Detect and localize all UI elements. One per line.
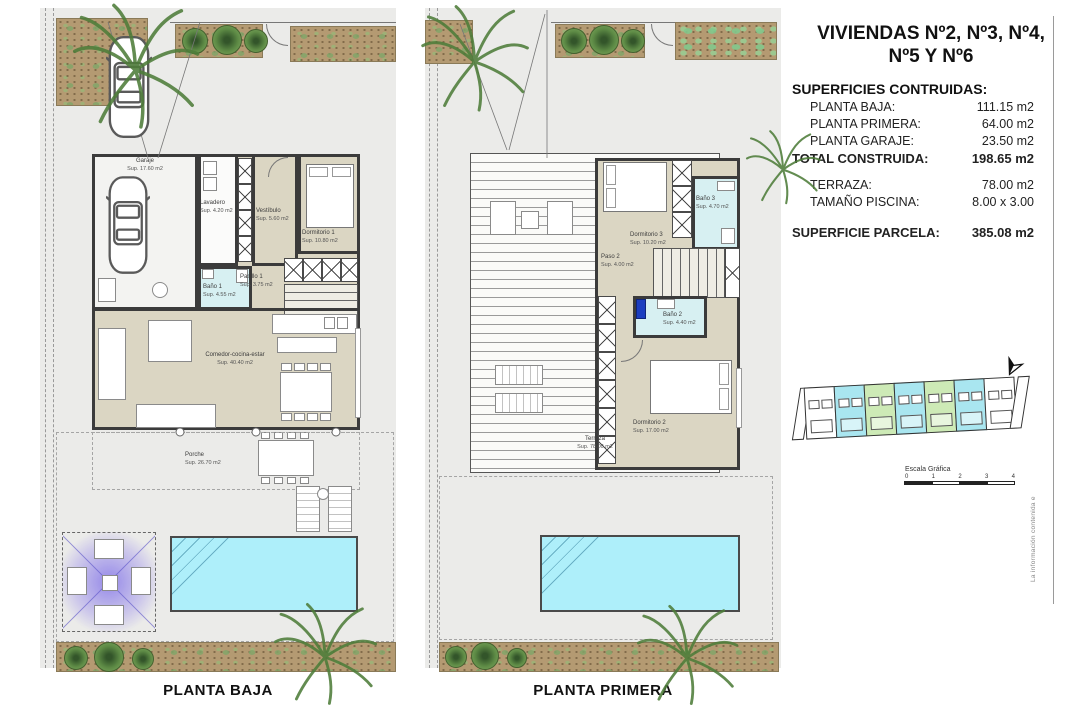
sheet-title-line1: VIVIENDAS Nº2, Nº3, Nº4, xyxy=(792,22,1070,45)
surfaces-heading: SUPERFICIES CONTRUIDAS: xyxy=(792,81,1070,97)
palm-tree-icon xyxy=(68,0,203,135)
room-label-dormitorio2: Dormitorio 2Sup. 17.00 m2 xyxy=(633,420,669,434)
scale-tick: 3 xyxy=(985,474,988,480)
title-block: VIVIENDAS Nº2, Nº3, Nº4, Nº5 Y Nº6 SUPER… xyxy=(792,22,1070,240)
room-label-terraza: TerrazaSup. 78.00 m2 xyxy=(545,436,645,450)
room-label-porche: PorcheSup. 26.70 m2 xyxy=(185,452,221,466)
site-unit-2 xyxy=(834,384,868,438)
room-label-dormitorio1: Dormitorio 1Sup. 10.80 m2 xyxy=(302,230,338,244)
plan-planta-baja: GarajeSup. 17.60 m2 LavaderoSup. 4.20 m2… xyxy=(40,8,396,668)
side-disclaimer-text: La información contenida e xyxy=(1030,452,1037,582)
scale-label: Escala Gráfica xyxy=(905,466,1015,473)
surface-label: PLANTA PRIMERA: xyxy=(810,117,921,131)
surface-row: PLANTA PRIMERA: 64.00 m2 xyxy=(792,117,1034,131)
surface-row: PLANTA GARAJE: 23.50 m2 xyxy=(792,134,1034,148)
scale-tick: 0 xyxy=(905,474,908,480)
sheet-title-line2: Nº5 Y Nº6 xyxy=(792,45,1070,68)
scale-tick: 2 xyxy=(958,474,961,480)
total-value: 198.65 m2 xyxy=(972,151,1034,166)
room-label-bano3: Baño 3Sup. 4.70 m2 xyxy=(696,196,729,210)
sheet-title: VIVIENDAS Nº2, Nº3, Nº4, Nº5 Y Nº6 xyxy=(792,22,1070,68)
surface-value: 111.15 m2 xyxy=(977,100,1034,114)
room-label-dormitorio3: Dormitorio 3Sup. 10.20 m2 xyxy=(630,232,666,246)
drawing-sheet: GarajeSup. 17.60 m2 LavaderoSup. 4.20 m2… xyxy=(0,0,1080,720)
room-label-pasillo1: Pasillo 1Sup. 3.75 m2 xyxy=(240,274,273,288)
palm-tree-icon xyxy=(270,600,380,710)
sheet-divider-line xyxy=(1053,16,1054,604)
total-row: TOTAL CONSTRUIDA: 198.65 m2 xyxy=(792,151,1034,166)
scale-segments xyxy=(905,481,1015,485)
surface-value: 64.00 m2 xyxy=(982,117,1034,131)
palm-tree-icon xyxy=(633,602,741,710)
scale-tick: 1 xyxy=(932,474,935,480)
surface-row: TERRAZA: 78.00 m2 xyxy=(792,178,1034,192)
surface-row: TAMAÑO PISCINA: 8.00 x 3.00 xyxy=(792,195,1034,209)
room-label-comedor: Comedor-cocina-estarSup. 40.40 m2 xyxy=(175,352,295,366)
palm-tree-icon xyxy=(417,2,532,117)
parcel-label: SUPERFICIE PARCELA: xyxy=(792,225,940,240)
plan-planta-primera: Dormitorio 3Sup. 10.20 m2 Baño 3Sup. 4.7… xyxy=(425,8,781,668)
surface-label: TAMAÑO PISCINA: xyxy=(810,195,920,209)
surface-label: PLANTA GARAJE: xyxy=(810,134,914,148)
site-plan xyxy=(788,372,1035,451)
room-label-bano1: Baño 1Sup. 4.55 m2 xyxy=(203,284,236,298)
scale-bar: Escala Gráfica 0 1 2 3 4 xyxy=(905,466,1015,485)
palm-tree-icon xyxy=(743,128,823,208)
parcel-row: SUPERFICIE PARCELA: 385.08 m2 xyxy=(792,225,1034,240)
site-units-row xyxy=(795,376,1027,440)
site-unit-3 xyxy=(864,383,898,437)
scale-ticks: 0 1 2 3 4 xyxy=(905,474,1015,480)
room-label-bano2: Baño 2Sup. 4.40 m2 xyxy=(663,312,696,326)
room-label-lavadero: LavaderoSup. 4.20 m2 xyxy=(200,200,233,214)
surface-label: PLANTA BAJA: xyxy=(810,100,895,114)
room-label-paso2: Paso 2Sup. 4.00 m2 xyxy=(601,254,634,268)
surface-row: PLANTA BAJA: 111.15 m2 xyxy=(792,100,1034,114)
surface-value: 8.00 x 3.00 xyxy=(972,195,1034,209)
site-unit-1 xyxy=(804,386,838,440)
scale-tick: 4 xyxy=(1012,474,1015,480)
room-label-garaje: GarajeSup. 17.60 m2 xyxy=(100,158,190,172)
room-label-vestibulo: VestíbuloSup. 5.60 m2 xyxy=(256,208,289,222)
car-icon xyxy=(106,166,150,284)
parcel-value: 385.08 m2 xyxy=(972,225,1034,240)
site-unit-5 xyxy=(923,380,957,434)
surface-value: 78.00 m2 xyxy=(982,178,1034,192)
site-unit-6 xyxy=(953,378,987,432)
site-unit-4 xyxy=(894,381,928,435)
surfaces-table: PLANTA BAJA: 111.15 m2 PLANTA PRIMERA: 6… xyxy=(792,100,1070,240)
surface-value: 23.50 m2 xyxy=(982,134,1034,148)
